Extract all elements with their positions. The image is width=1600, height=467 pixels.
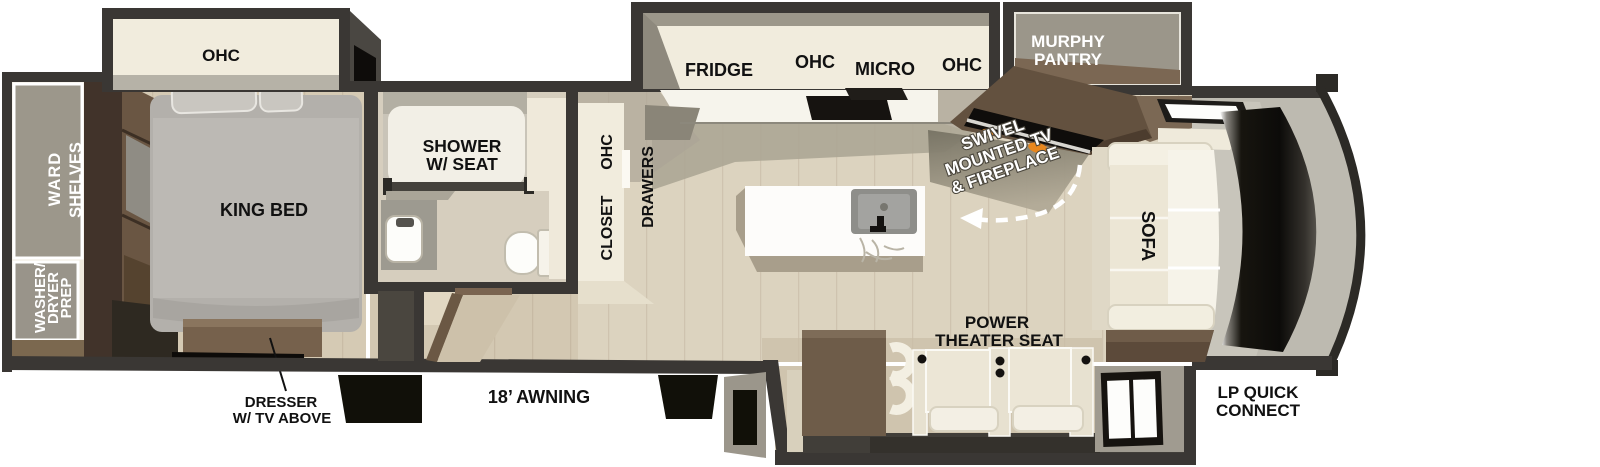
svg-text:OHC: OHC (795, 52, 835, 72)
svg-text:SHOWER: SHOWER (423, 136, 502, 156)
svg-text:WARD: WARD (46, 152, 64, 206)
svg-text:PREP: PREP (58, 278, 75, 319)
svg-text:KING BED: KING BED (220, 200, 308, 220)
svg-text:W/ SEAT: W/ SEAT (426, 154, 498, 174)
svg-text:FRIDGE: FRIDGE (685, 60, 753, 80)
svg-text:18’ AWNING: 18’ AWNING (488, 387, 590, 407)
svg-text:MICRO: MICRO (855, 59, 915, 79)
svg-text:MURPHY: MURPHY (1031, 32, 1105, 51)
svg-text:SHELVES: SHELVES (67, 142, 85, 218)
svg-text:PANTRY: PANTRY (1034, 50, 1103, 69)
svg-text:OHC: OHC (202, 46, 240, 65)
svg-text:OHC: OHC (942, 55, 982, 75)
svg-text:DRESSER: DRESSER (245, 394, 318, 411)
svg-text:SOFA: SOFA (1138, 211, 1159, 261)
svg-text:W/ TV ABOVE: W/ TV ABOVE (233, 410, 332, 427)
svg-text:OHC: OHC (599, 134, 616, 170)
svg-text:LP QUICK: LP QUICK (1218, 383, 1300, 402)
svg-text:DRAWERS: DRAWERS (640, 146, 657, 228)
svg-text:THEATER SEAT: THEATER SEAT (935, 331, 1063, 350)
svg-text:CONNECT: CONNECT (1216, 401, 1301, 420)
svg-text:POWER: POWER (965, 313, 1029, 332)
svg-text:CLOSET: CLOSET (599, 195, 616, 260)
